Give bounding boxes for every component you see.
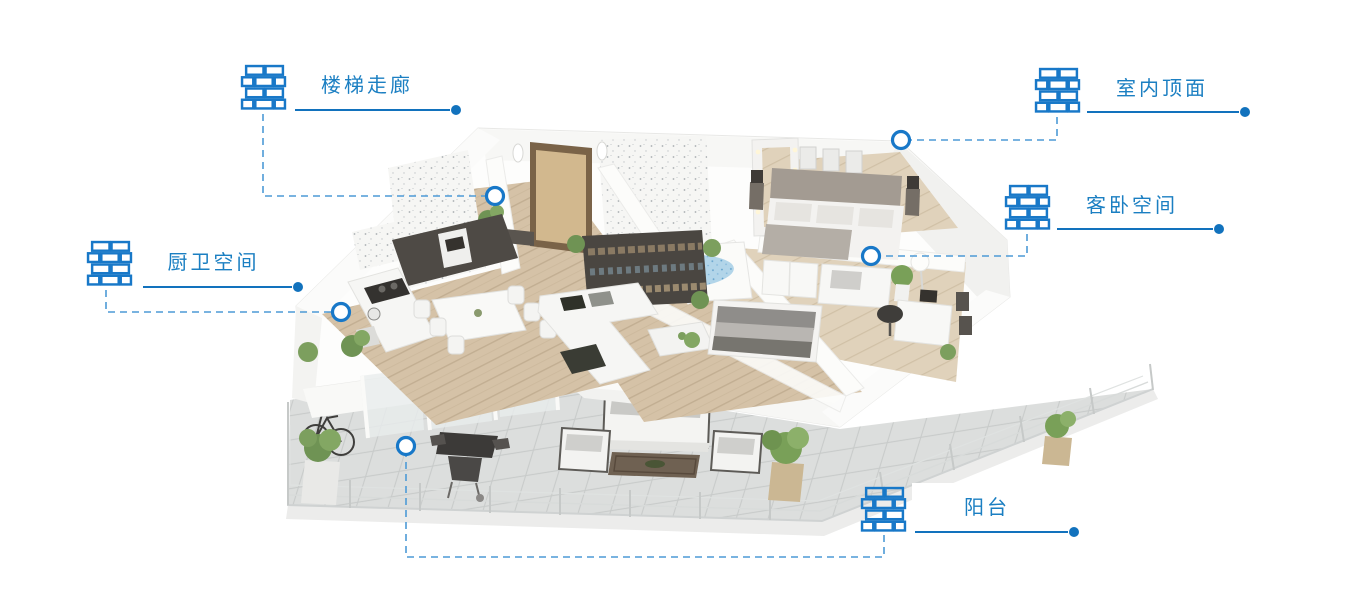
connector-interior-ceiling xyxy=(911,117,1057,140)
callout-underline xyxy=(915,531,1068,533)
outdoor-armchair-right xyxy=(711,431,762,473)
line-end-dot xyxy=(1214,224,1224,234)
line-end-dot xyxy=(1069,527,1079,537)
callout-label: 楼梯走廊 xyxy=(321,69,413,98)
brick-wall-icon xyxy=(86,240,133,287)
hotspot-marker-interior-ceiling[interactable] xyxy=(893,132,910,149)
brick-wall-icon xyxy=(240,64,287,111)
balcony-plant-far-right xyxy=(1042,411,1076,466)
page: 楼梯走廊 室内顶面 客卧空间 厨卫空间 阳台 xyxy=(0,0,1360,609)
hotspot-marker-guest-bedroom[interactable] xyxy=(863,248,880,265)
line-end-dot xyxy=(451,105,461,115)
callout-label: 客卧空间 xyxy=(1086,189,1178,218)
brick-wall-icon xyxy=(860,486,907,533)
hotspot-marker-balcony[interactable] xyxy=(398,438,415,455)
brick-wall-icon xyxy=(1034,67,1081,114)
callout-label-box[interactable]: 楼梯走廊 xyxy=(293,61,441,106)
callout-underline xyxy=(1057,228,1213,230)
callout-underline xyxy=(295,109,450,111)
outdoor-table xyxy=(608,452,700,478)
callout-label: 厨卫空间 xyxy=(168,246,260,275)
brick-wall-icon xyxy=(1004,184,1051,231)
line-end-dot xyxy=(1240,107,1250,117)
callout-underline xyxy=(1087,111,1239,113)
callout-label: 阳台 xyxy=(964,491,1010,520)
callout-label-box[interactable]: 阳台 xyxy=(912,483,1062,528)
line-end-dot xyxy=(293,282,303,292)
callout-label: 室内顶面 xyxy=(1116,72,1208,101)
hotspot-marker-kitchen-bathroom[interactable] xyxy=(333,304,350,321)
hotspot-marker-stair-corridor[interactable] xyxy=(487,188,504,205)
callout-label-box[interactable]: 客卧空间 xyxy=(1057,181,1207,226)
balcony-plant-left xyxy=(299,429,341,505)
callout-label-box[interactable]: 厨卫空间 xyxy=(140,238,287,283)
outdoor-armchair-left xyxy=(559,428,610,472)
callout-underline xyxy=(143,286,292,288)
callout-label-box[interactable]: 室内顶面 xyxy=(1087,64,1237,109)
